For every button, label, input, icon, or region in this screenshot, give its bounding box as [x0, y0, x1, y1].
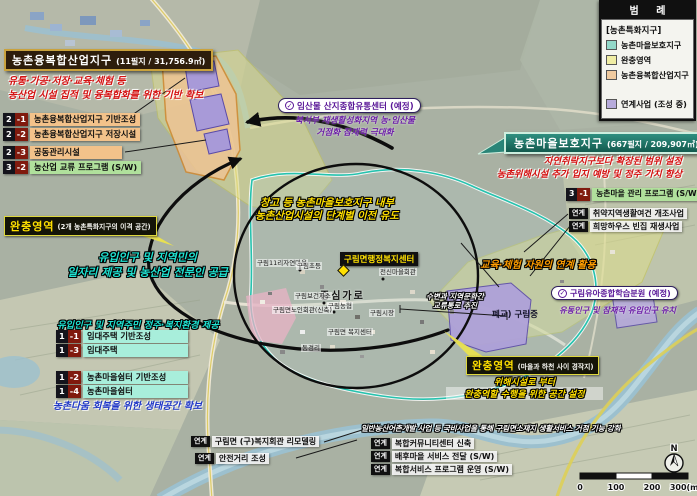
program-subnumber: -1 — [68, 330, 81, 343]
link-badge: 연계 — [569, 208, 588, 219]
program-row-2-2: 2-2농촌융복합산업지구 저장시설 — [3, 128, 140, 141]
distribution-center-title: 임산물 산지종합유통센터 (예정) — [297, 100, 414, 112]
link-label: 희망하우스 빈집 재생사업 — [590, 221, 683, 232]
link-row-safe-street: 연계 안전거리 조성 — [195, 453, 269, 464]
buffer-right-desc-line2: 완충역할 수행을 위한 공간 설정 — [446, 387, 603, 400]
labor-supply-line2: 일자리 제공 및 농산업 전문인 공급 — [50, 266, 245, 281]
buffer-left-box: 완충영역 (2개 농촌특화지구의 이격 공간) — [4, 216, 157, 236]
learning-center-pill: ✓ 구림유아종합학습분원 (예정) — [551, 286, 678, 300]
rural-plan-map: 0 100 200 300(m) N 범 례 [농촌특화지구] 농촌마을보호지구… — [0, 0, 697, 496]
buffer-right-title: 완충영역 — [472, 358, 515, 373]
link-label: 복합서비스 프로그램 운영 (S/W) — [392, 464, 512, 475]
link-label: 취약지역생활여건 개조사업 — [590, 208, 687, 219]
program-number: 3 — [3, 161, 15, 174]
industrial-zone-swatch — [606, 70, 617, 80]
distribution-center-pill: ✓ 임산물 산지종합유통센터 (예정) — [278, 98, 421, 113]
program-label: 농촌마을 관리 프로그램 (S/W) — [592, 188, 697, 201]
link-badge: 연계 — [569, 221, 588, 232]
legend-item-linked: 연계사업 (조성 중) — [606, 98, 689, 110]
link-label: 구림면 (구)복지회관 리모델링 — [212, 436, 319, 447]
scale-tick-100: 100 — [608, 483, 625, 492]
protection-desc-line1: 자연취락지구보다 확장된 범위 설정 — [488, 155, 682, 168]
relocation-note: 창고 등 농촌마을보호지구 내부 농촌산업시설의 단계별 이전 유도 — [242, 197, 412, 223]
legend-item-label: 완충영역 — [621, 54, 651, 66]
check-icon: ✓ — [558, 289, 567, 298]
program-row-1-3: 1-3임대주택 — [56, 344, 188, 357]
link-row-living-conditions: 연계 취약지역생활여건 개조사업 — [569, 208, 687, 219]
learning-center-description: 유동인구 및 잠재적 유입인구 유치 — [545, 304, 690, 316]
link-label: 안전거리 조성 — [216, 453, 269, 464]
protection-zone-swatch — [606, 40, 617, 50]
link-row-welfare-center: 연계 구림면 (구)복지회관 리모델링 — [191, 436, 319, 447]
link-row-empty-house: 연계 희망하우스 빈집 재생사업 — [569, 221, 682, 232]
corridor-line1: 수변과 지역문화간 — [405, 292, 505, 301]
link-badge: 연계 — [191, 436, 210, 447]
industrial-zone-title-box: 농촌융복합산업지구 (11필지 / 31,756.9㎡) — [4, 49, 213, 71]
program-number: 1 — [56, 385, 68, 398]
industrial-zone-area: (11필지 / 31,756.9㎡) — [116, 56, 205, 67]
compass-north-label: N — [670, 444, 677, 454]
protection-zone-title-box: 농촌마을보호지구 (667필지 / 209,907㎡) — [504, 132, 697, 154]
legend-body: [농촌특화지구] 농촌마을보호지구 완충영역 농촌융복합산업지구 연계사업 (조… — [601, 19, 694, 119]
program-row-1-4: 1-4농촌마을쉼터 — [56, 385, 188, 398]
protection-zone-description: 자연취락지구보다 확장된 범위 설정 농촌위해시설 추가 입지 예방 및 정주 … — [488, 155, 682, 181]
program-subnumber: -2 — [15, 161, 28, 174]
program-subnumber: -1 — [15, 113, 28, 126]
labor-supply-note: 유입인구 및 지역민의 일자리 제공 및 농산업 전문인 공급 — [50, 251, 245, 280]
buffer-zone-swatch — [606, 55, 617, 65]
program-row-2-3: 2-3공동관리시설 — [3, 146, 122, 159]
link-row-village-service: 연계 배후마을 서비스 전달 (S/W) — [371, 451, 497, 462]
legend-item-label: 농촌마을보호지구 — [621, 39, 681, 51]
link-badge: 연계 — [371, 451, 390, 462]
eco-space-note: 농촌다움 회복을 위한 생태공간 확보 — [53, 398, 202, 412]
program-number: 1 — [56, 344, 68, 357]
program-label: 임대주택 — [83, 344, 188, 357]
program-label: 농촌융복합산업지구 기반조성 — [30, 113, 140, 126]
legend-title: 범 례 — [601, 1, 694, 19]
program-label: 농촌마을쉼터 기반조성 — [83, 371, 188, 384]
poi-label: 구림면 복지센터 — [327, 328, 373, 336]
program-subnumber: -2 — [15, 128, 28, 141]
program-row-1-1: 1-1임대주택 기반조성 — [56, 330, 188, 343]
distribution-center-description: 북서부 재생활성화지역 농·임산물 거점화 잠재력 극대화 — [285, 115, 425, 139]
program-number: 1 — [56, 371, 68, 384]
program-label: 농촌마을쉼터 — [83, 385, 188, 398]
link-badge: 연계 — [371, 464, 390, 475]
link-row-community-center: 연계 복합커뮤니티센터 신축 — [371, 438, 474, 449]
program-subnumber: -3 — [68, 344, 81, 357]
program-row-3-2: 3-2농산업 교류 프로그램 (S/W) — [3, 161, 141, 174]
industrial-desc-line2: 농산업 시설 집적 및 융복합화를 위한 기반 확보 — [8, 89, 203, 103]
program-number: 2 — [3, 113, 15, 126]
link-row-service-program: 연계 복합서비스 프로그램 운영 (S/W) — [371, 464, 512, 475]
corridor-line2: 교류통로 추진 — [405, 301, 505, 310]
legend-item-label: 농촌융복합산업지구 — [621, 69, 689, 81]
program-label: 임대주택 기반조성 — [83, 330, 188, 343]
legend-item-industrial: 농촌융복합산업지구 — [606, 69, 689, 81]
linked-project-swatch — [606, 99, 617, 109]
legend: 범 례 [농촌특화지구] 농촌마을보호지구 완충영역 농촌융복합산업지구 연계사… — [599, 0, 696, 121]
national-project-banner: 일반농산어촌개발 사업 등 국비사업을 통해 구림면소재지 생활서비스 거점 기… — [361, 423, 621, 434]
protection-desc-line2: 농촌위해시설 추가 입지 예방 및 정주 가치 향상 — [488, 168, 682, 181]
poi-label: 동경리 — [301, 344, 321, 352]
program-subnumber: -1 — [577, 188, 590, 201]
program-subnumber: -4 — [68, 385, 81, 398]
program-label: 농촌융복합산업지구 저장시설 — [30, 128, 140, 141]
poi-label: 구림보건지소 — [294, 292, 332, 300]
poi-label: 전신마을회관 — [379, 268, 417, 276]
legend-item-buffer: 완충영역 — [606, 54, 689, 66]
program-subnumber: -3 — [15, 146, 28, 159]
learning-center-title: 구림유아종합학습분원 (예정) — [570, 287, 671, 299]
program-row-1-2: 1-2농촌마을쉼터 기반조성 — [56, 371, 188, 384]
program-number: 2 — [3, 146, 15, 159]
program-row-3-1: 3-1농촌마을 관리 프로그램 (S/W) — [566, 188, 697, 201]
protection-zone-title: 농촌마을보호지구 — [514, 135, 603, 151]
legend-item-protection: 농촌마을보호지구 — [606, 39, 689, 51]
link-label: 복합커뮤니티센터 신축 — [392, 438, 474, 449]
industrial-zone-description: 유통·가공·저장·교육·체험 등 농산업 시설 집적 및 융복합화를 위한 기반… — [8, 75, 203, 102]
labor-supply-line1: 유입인구 및 지역민의 — [50, 251, 245, 266]
poi-label: 구림시장 — [369, 309, 395, 317]
protection-zone-area: (667필지 / 209,907㎡) — [607, 139, 697, 150]
relocation-line1: 창고 등 농촌마을보호지구 내부 — [242, 197, 412, 210]
program-label: 공동관리시설 — [30, 146, 122, 159]
check-icon: ✓ — [285, 101, 294, 110]
program-number: 3 — [566, 188, 577, 201]
legend-item-label: 연계사업 (조성 중) — [621, 98, 687, 110]
industrial-zone-title: 농촌융복합산업지구 — [12, 52, 112, 68]
scale-tick-300: 300(m) — [670, 483, 697, 492]
scale-tick-200: 200 — [644, 483, 661, 492]
program-subnumber: -2 — [68, 371, 81, 384]
link-badge: 연계 — [371, 438, 390, 449]
scale-tick-0: 0 — [577, 483, 583, 492]
distribution-desc-line1: 북서부 재생활성화지역 농·임산물 — [285, 115, 425, 127]
program-number: 1 — [56, 330, 68, 343]
buffer-right-subtitle: (마을과 하천 사이 경작지) — [518, 361, 594, 371]
link-label: 배후마을 서비스 전달 (S/W) — [392, 451, 497, 462]
admin-center-label: 구림면행정복지센터 — [340, 252, 418, 266]
welfare-heading: 유입인구 및 지역주민 정주·복지환경 제공 — [57, 317, 219, 331]
buffer-left-subtitle: (2개 농촌특화지구의 이격 공간) — [57, 221, 150, 231]
education-link-note: 교육·체험 자원의 연계 활용 — [458, 256, 618, 271]
program-row-2-1: 2-1농촌융복합산업지구 기반조성 — [3, 113, 140, 126]
link-badge: 연계 — [195, 453, 214, 464]
relocation-line2: 농촌산업시설의 단계별 이전 유도 — [242, 210, 412, 223]
corridor-note: 수변과 지역문화간 교류통로 추진 — [405, 292, 505, 310]
buffer-left-title: 완충영역 — [10, 218, 54, 234]
legend-group-title: [농촌특화지구] — [606, 24, 689, 36]
distribution-desc-line2: 거점화 잠재력 극대화 — [285, 127, 425, 139]
poi-label: 구림면노인회관(신축) — [272, 306, 333, 314]
buffer-right-box: 완충영역 (마을과 하천 사이 경작지) — [466, 356, 599, 375]
program-number: 2 — [3, 128, 15, 141]
poi-label: 구림초등 — [296, 262, 322, 270]
industrial-desc-line1: 유통·가공·저장·교육·체험 등 — [8, 75, 203, 89]
program-label: 농산업 교류 프로그램 (S/W) — [30, 161, 141, 174]
